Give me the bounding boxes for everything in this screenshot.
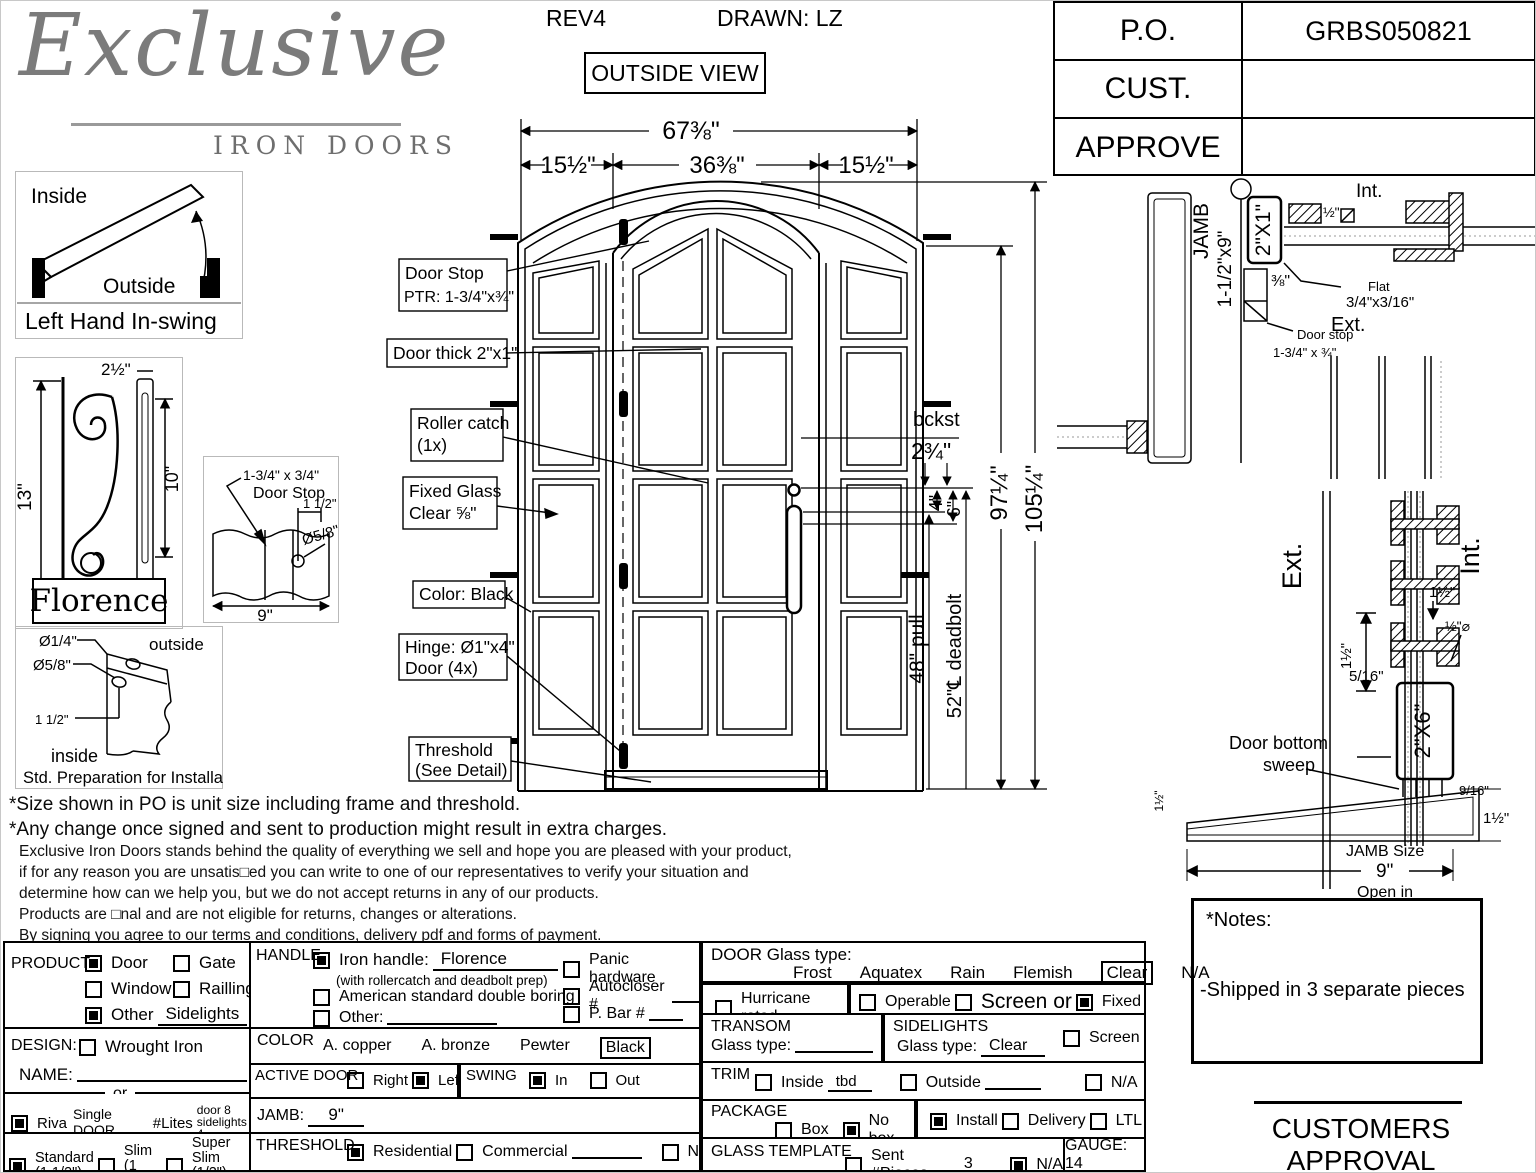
florence-height-dim: 13" [15, 483, 36, 511]
swing-outside-label: Outside [103, 275, 175, 298]
po-table: P.O. GRBS050821 CUST. APPROVE [1053, 1, 1536, 176]
commercial-line[interactable] [572, 1145, 642, 1159]
color-pewter[interactable]: Pewter [520, 1037, 570, 1059]
sidelights-glass-value[interactable]: Clear [981, 1037, 1045, 1057]
doorstop-detail: 1-3/4" x 3/4" Door Stop 1 1/2" Ø5/8" 9" [203, 456, 339, 623]
pbar-label: P. Bar # [589, 1005, 645, 1023]
prep-caption: Std. Preparation for Installation [23, 769, 223, 787]
threshold-form-label: THRESHOLD [256, 1137, 355, 1155]
checkbox-superslim[interactable] [166, 1158, 183, 1173]
screen-cell: Operable Screen or Fixed [849, 983, 1146, 1015]
trim-outside-line[interactable] [985, 1076, 1041, 1090]
glass-lites [533, 229, 907, 735]
product-gate-label: Gate [199, 953, 236, 973]
gauge-value: GAUGE: 14 [1065, 1137, 1144, 1173]
active-door-label: ACTIVE DOOR [255, 1067, 358, 1084]
checkbox-gate[interactable] [173, 955, 190, 972]
prep-dim: 1 1/2" [35, 712, 69, 727]
sidelights-cell: SIDELIGHTS Glass type: Clear Screen [883, 1015, 1146, 1063]
callout-door-stop-2: PTR: 1-3/4"x¾" [404, 289, 514, 306]
dim-height-105: 105¼" [1021, 465, 1048, 534]
plan-stop-1: Door stop [1297, 327, 1353, 342]
section-view [1187, 491, 1501, 889]
trim-inside-value[interactable]: tbd [828, 1073, 872, 1092]
callout-glass-1: Fixed Glass [409, 481, 502, 501]
sweep-label-1: Door bottom [1229, 733, 1328, 753]
transom-cell: TRANSOM Glass type: [701, 1015, 883, 1063]
notes-body: -Shipped in 3 separate pieces [1200, 979, 1465, 1002]
swing-cell: SWING In Out [459, 1065, 701, 1099]
note-p2: if for any reason you are unsatis□ed you… [19, 862, 792, 883]
drawn-label: DRAWN: LZ [717, 5, 843, 32]
plan-flat-2: 3/4"x3/16" [1346, 294, 1414, 311]
checkbox-american-boring[interactable] [313, 989, 330, 1006]
iron-handle-sub: (with rollercatch and deadbolt prep) [336, 973, 548, 988]
approval-label: CUSTOMERS APPROVAL [1211, 1113, 1511, 1173]
approval-signature-line[interactable] [1254, 1101, 1462, 1104]
dim-overall: 67⅜" [662, 117, 720, 145]
florence-top-dim: 2½" [101, 360, 131, 379]
outside-view-label: OUTSIDE VIEW [584, 52, 766, 94]
name-line[interactable] [77, 1068, 247, 1082]
jamb-size-label: JAMB Size [1346, 843, 1424, 860]
swing-in-label: In [555, 1072, 568, 1089]
dim-pull: 48" pull [906, 614, 929, 683]
checkbox-commercial[interactable] [456, 1144, 473, 1161]
iron-handle-label: Iron handle: [339, 950, 429, 970]
standard-sub: (1 1/2") [35, 1165, 82, 1173]
thickness-cell: Standard (1 1/2") Slim (1 1/4") Super Sl… [3, 1134, 251, 1172]
name-label: NAME: [19, 1065, 73, 1085]
doorstop-dim1: 1 1/2" [303, 496, 337, 511]
section-dim-1: 1½" [1338, 643, 1355, 669]
checkbox-trim-inside[interactable] [755, 1074, 772, 1091]
glass-rain[interactable]: Rain [950, 963, 985, 983]
template-na-label: N/A [1036, 1156, 1063, 1173]
checkbox-operable[interactable] [859, 994, 876, 1011]
unit-frame [518, 182, 923, 791]
color-bronze[interactable]: A. bronze [421, 1037, 489, 1059]
product-label: PRODUCT: [11, 955, 93, 973]
product-railing-label: Railling [199, 979, 255, 999]
checkbox-railing[interactable] [173, 981, 190, 998]
checkbox-trim-outside[interactable] [900, 1074, 917, 1091]
approve-label: APPROVE [1055, 119, 1243, 176]
american-boring-label: American standard double boring [339, 988, 575, 1006]
callout-threshold-1: Threshold [415, 740, 493, 760]
logo-underline [71, 123, 401, 126]
checkbox-other-product[interactable] [85, 1007, 102, 1024]
sidelights-glass-label: Glass type: [897, 1038, 977, 1056]
delivery-label: Delivery [1028, 1112, 1086, 1130]
section-dim-3: ½"⌀ [1445, 618, 1471, 634]
iron-handle-value[interactable]: Florence [433, 949, 558, 971]
section-dim-5: 9/16" [1459, 783, 1489, 798]
box-label: Box [801, 1121, 829, 1139]
checkbox-box[interactable] [775, 1122, 792, 1139]
transom-glass-label: Glass type: [711, 1037, 791, 1055]
color-copper[interactable]: A. copper [323, 1037, 391, 1059]
callout-hinge-1: Hinge: Ø1"x4" [405, 637, 515, 657]
po-value: GRBS050821 [1243, 3, 1534, 59]
dim-4: 4" [926, 495, 946, 511]
product-other-label: Other [111, 1005, 154, 1025]
checkbox-window[interactable] [85, 981, 102, 998]
note-change: *Any change once signed and sent to prod… [9, 819, 667, 841]
commercial-label: Commercial [482, 1143, 567, 1161]
plan-flat-1: Flat [1368, 279, 1390, 294]
note-p3: determine how can we help you, but we do… [19, 883, 792, 904]
florence-detail: 2½" 13" 10" Florence [15, 357, 183, 629]
section-dim-4: 5/16" [1349, 668, 1384, 685]
callout-hinge-2: Door (4x) [405, 658, 478, 678]
checkbox-door[interactable] [85, 955, 102, 972]
door-glass-cell: DOOR Glass type: Frost Aquatex Rain Flem… [701, 941, 1146, 983]
trim-na-label: N/A [1111, 1074, 1138, 1092]
section-dim-2: 1½" [1429, 584, 1455, 601]
section-ext-label: Ext. [1277, 543, 1307, 590]
handle-label: HANDLE [256, 947, 321, 965]
superslim-label: Super Slim [192, 1135, 231, 1166]
install-label: Install [956, 1112, 998, 1130]
slim-sub: (1 1/4") [124, 1158, 154, 1173]
dim-center: 36⅜" [689, 152, 744, 179]
checkbox-fixed[interactable] [1076, 994, 1093, 1011]
door-elevation: 67⅜" 15½" 36⅜" 15½" 97¼" 105¼" [381, 96, 1061, 806]
prep-dia2: Ø5/8" [33, 657, 71, 674]
checkbox-right[interactable] [347, 1072, 364, 1089]
fixed-label: Fixed [1102, 993, 1141, 1011]
checkbox-residential[interactable] [347, 1144, 364, 1161]
glass-template-cell: GLASS TEMPLATE Sent #Pieces 3 N/A [701, 1139, 1065, 1172]
checkbox-riva[interactable] [11, 1115, 28, 1132]
checkbox-install[interactable] [930, 1113, 947, 1130]
operable-label: Operable [885, 993, 951, 1011]
swing-inside-label: Inside [31, 185, 87, 208]
swing-out-label: Out [616, 1072, 640, 1089]
glass-flemish[interactable]: Flemish [1013, 963, 1073, 983]
bckst-value: 2¾" [911, 438, 951, 464]
plan-int-label: Int. [1356, 181, 1382, 202]
riva-label: Riva [37, 1115, 67, 1132]
jamb-form-value[interactable]: 9" [308, 1105, 364, 1127]
checkbox-panic[interactable] [563, 961, 580, 978]
rev-label: REV4 [546, 5, 606, 32]
po-row: P.O. GRBS050821 [1055, 3, 1534, 61]
plan-threeeighth-dim: ⅜" [1271, 273, 1290, 290]
swing-form-label: SWING [466, 1067, 517, 1084]
color-label: COLOR [257, 1032, 314, 1050]
design-cell: DESIGN: Wrought Iron NAME: or [3, 1029, 251, 1094]
trim-inside-label: Inside [781, 1074, 824, 1092]
callout-threshold-2: (See Detail) [415, 760, 507, 780]
sweep-label-2: sweep [1263, 755, 1315, 775]
checkbox-threshold-na[interactable] [662, 1144, 679, 1161]
color-black-selected[interactable]: Black [600, 1037, 651, 1059]
swing-diagram: Inside Outside Left Hand In-swing [15, 171, 243, 339]
checkbox-trim-na[interactable] [1085, 1074, 1102, 1091]
threshold-cell: THRESHOLD Residential Commercial N/A [249, 1134, 701, 1172]
checkbox-slim[interactable] [98, 1158, 115, 1173]
jamb-cell: JAMB: 9" [249, 1099, 701, 1134]
checkbox-left[interactable] [412, 1072, 429, 1089]
section-dim-7: 1½" [1152, 791, 1166, 812]
autocloser-line[interactable] [672, 989, 702, 1003]
package-cell: PACKAGE Box No box [701, 1101, 916, 1139]
slim-label: Slim [124, 1143, 152, 1159]
screen-or-label: Screen or [981, 990, 1072, 1014]
checkbox-autocloser[interactable] [563, 988, 580, 1005]
approve-row: APPROVE [1055, 119, 1534, 176]
plan-jamb-label: JAMB [1190, 203, 1213, 259]
riva-cell: Riva Single DOOR #Lites door 8 sidelight… [3, 1094, 251, 1134]
lites-label: #Lites [153, 1115, 193, 1132]
prep-inside-label: inside [51, 746, 98, 766]
dim-left: 15½" [540, 152, 595, 179]
note-size: *Size shown in PO is unit size including… [9, 794, 520, 816]
note-p1: Exclusive Iron Doors stands behind the q… [19, 841, 792, 862]
glass-clear-selected[interactable]: Clear [1101, 961, 1154, 985]
transom-glass-line[interactable] [795, 1039, 873, 1053]
checkbox-wrought-iron[interactable] [79, 1039, 96, 1056]
prep-outside-label: outside [149, 635, 204, 654]
template-sent-label: Sent #Pieces [871, 1147, 940, 1173]
callout-roller-2: (1x) [417, 435, 447, 455]
product-other-value[interactable]: Sidelights [158, 1004, 248, 1026]
section-int-label: Int. [1455, 537, 1485, 575]
transom-label: TRANSOM [711, 1018, 791, 1036]
wrought-iron-label: Wrought Iron [105, 1037, 203, 1057]
checkbox-standard[interactable] [9, 1158, 26, 1173]
trim-outside-label: Outside [926, 1074, 981, 1092]
po-label: P.O. [1055, 3, 1243, 59]
plan-half-dim: ½" [1323, 204, 1340, 220]
checkbox-template-na[interactable] [1010, 1157, 1027, 1173]
dim-deadbolt: 52"℄ deadbolt [944, 593, 966, 718]
superslim-sub: (1/2") SDL [192, 1165, 227, 1173]
residential-label: Residential [373, 1143, 452, 1161]
dim-6: 6" [944, 501, 964, 517]
checkbox-handle-other[interactable] [313, 1010, 330, 1027]
hurricane-cell: Hurricane rated [701, 983, 849, 1015]
callout-color: Color: Black [419, 584, 514, 604]
cust-label: CUST. [1055, 61, 1243, 117]
glass-template-label: GLASS TEMPLATE [711, 1143, 852, 1161]
product-window-label: Window [111, 979, 171, 999]
glass-aquatex[interactable]: Aquatex [860, 963, 922, 983]
callout-glass-2: Clear ⅝" [409, 503, 477, 523]
callout-door-stop-1: Door Stop [405, 263, 484, 283]
jamb-size-value: 9" [1376, 861, 1393, 882]
cust-value[interactable] [1243, 61, 1534, 117]
plan-tube-label: 2"X1" [1252, 204, 1275, 256]
product-cell: PRODUCT: Door Gate Window Railling Other… [3, 941, 251, 1029]
section-tube-label: 2"X6" [1410, 704, 1435, 759]
florence-name: Florence [30, 583, 169, 619]
prep-dia1: Ø1/4" [39, 633, 77, 650]
callout-door-thick: Door thick 2"x1" [393, 343, 517, 363]
plan-stop-2: 1-3/4" x ¾" [1273, 345, 1337, 360]
plan-jamb-size: 1-1/2"x9" [1215, 231, 1236, 308]
template-pieces-value[interactable]: 3 [944, 1155, 992, 1173]
standard-label: Standard [35, 1150, 94, 1166]
checkbox-hurricane[interactable] [715, 1000, 732, 1017]
bckst-label: bckst [913, 409, 960, 431]
color-cell: COLOR A. copper A. bronze Pewter Black [249, 1029, 701, 1065]
delivery-cell: Install Delivery LTL [916, 1101, 1146, 1139]
handle-other-label: Other: [339, 1009, 383, 1027]
jamb-details: JAMB 1-1/2"x9" 2"X1" Int. ½" Flat 3/4"x3… [1051, 176, 1536, 906]
doorstop-dim2: Ø5/8" [300, 522, 339, 549]
product-door-label: Door [111, 953, 148, 973]
ltl-label: LTL [1116, 1112, 1142, 1130]
checkbox-swing-out[interactable] [590, 1072, 607, 1089]
design-label: DESIGN: [11, 1037, 77, 1055]
callout-roller-1: Roller catch [417, 413, 509, 433]
handle-cell: HANDLE Iron handle: Florence (with rolle… [249, 941, 701, 1029]
jamb-form-label: JAMB: [257, 1107, 304, 1125]
anchor-tabs [490, 234, 951, 744]
logo-exclusive: Exclusive [19, 3, 450, 89]
checkbox-template-sent[interactable] [845, 1157, 862, 1173]
cust-row: CUST. [1055, 61, 1534, 119]
trim-label: TRIM [711, 1066, 750, 1084]
checkbox-screen[interactable] [955, 994, 972, 1011]
pbar-line[interactable] [649, 1007, 683, 1021]
florence-inner-dim: 10" [162, 466, 182, 492]
swing-caption: Left Hand In-swing [25, 308, 217, 334]
pull-handle [787, 485, 801, 614]
prep-detail: Ø1/4" Ø5/8" 1 1/2" outside inside Std. P… [15, 626, 223, 789]
checkbox-swing-in[interactable] [529, 1072, 546, 1089]
notes-title: *Notes: [1206, 909, 1272, 932]
doorstop-dim3: 9" [257, 606, 273, 623]
doorstop-size: 1-3/4" x 3/4" [243, 467, 319, 483]
checkbox-nobox[interactable] [843, 1122, 860, 1139]
dim-right: 15½" [838, 152, 893, 179]
handle-other-line[interactable] [387, 1011, 497, 1025]
notes-box: *Notes: -Shipped in 3 separate pieces [1191, 898, 1483, 1064]
trim-cell: TRIM Inside tbd Outside N/A [701, 1063, 1146, 1101]
checkbox-iron-handle[interactable] [313, 952, 330, 969]
sidelights-screen-label: Screen [1089, 1029, 1140, 1047]
gauge-cell: GAUGE: 14 [1065, 1139, 1146, 1172]
glass-frost[interactable]: Frost [793, 963, 832, 983]
dim-height-97: 97¼" [986, 465, 1013, 520]
note-p4: Products are □nal and are not eligible f… [19, 904, 792, 925]
checkbox-ltl[interactable] [1090, 1113, 1107, 1130]
approve-value[interactable] [1243, 119, 1534, 176]
checkbox-sidelights-screen[interactable] [1063, 1030, 1080, 1047]
right-label: Right [373, 1072, 408, 1089]
drawing-sheet: Exclusive IRON DOORS REV4 DRAWN: LZ OUTS… [0, 0, 1536, 1173]
active-door-cell: ACTIVE DOOR Right Left [249, 1065, 459, 1099]
checkbox-delivery[interactable] [1002, 1113, 1019, 1130]
checkbox-pbar[interactable] [563, 1006, 580, 1023]
section-dim-6: 1½" [1483, 810, 1509, 827]
sidelights-label: SIDELIGHTS [893, 1018, 988, 1036]
